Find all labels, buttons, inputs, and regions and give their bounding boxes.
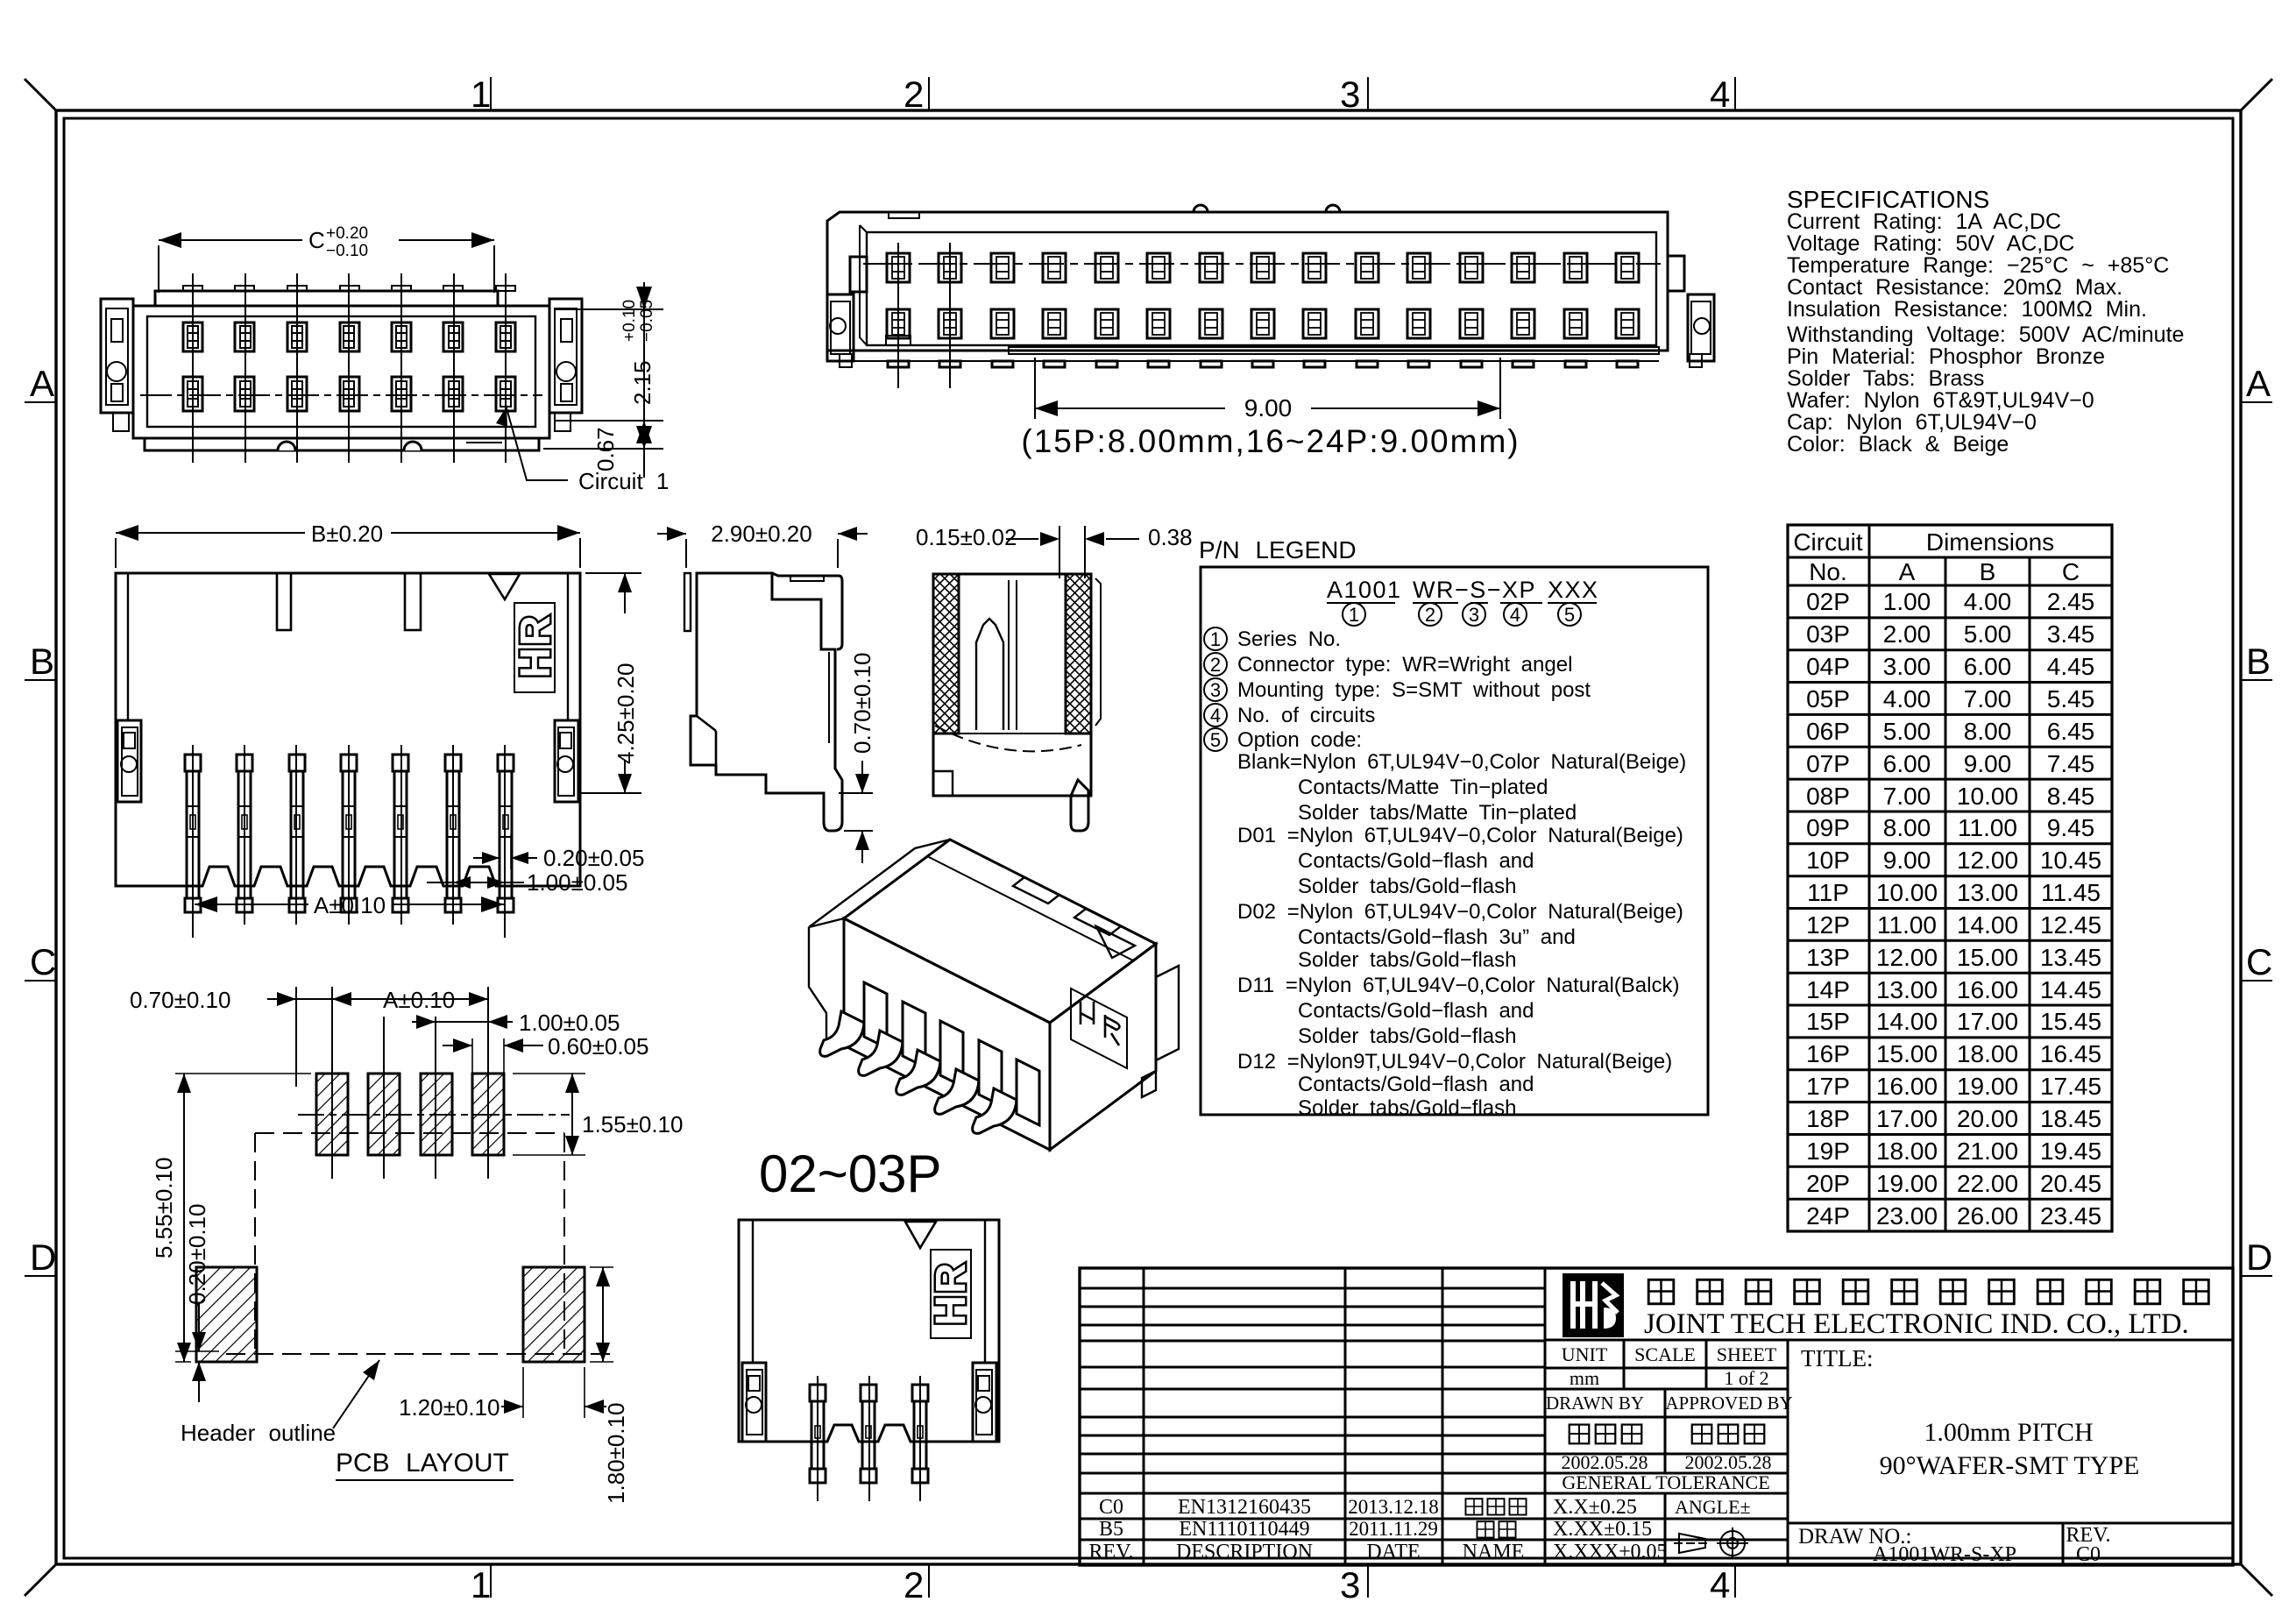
svg-text:1.00±0.05: 1.00±0.05: [519, 1010, 620, 1036]
svg-text:Temperature Range: −25°C ~ +85: Temperature Range: −25°C ~ +85°C: [1787, 253, 2169, 278]
svg-text:2: 2: [904, 74, 924, 115]
svg-text:2002.05.28: 2002.05.28: [1562, 1451, 1648, 1473]
svg-text:XXX: XXX: [1548, 577, 1599, 603]
svg-text:Contacts/Gold−flash and: Contacts/Gold−flash and: [1298, 999, 1534, 1023]
svg-text:4.25±0.20: 4.25±0.20: [613, 663, 639, 764]
svg-text:No. of circuits: No. of circuits: [1237, 704, 1375, 727]
svg-text:SCALE: SCALE: [1634, 1343, 1696, 1365]
svg-text:Solder tabs/Gold−flash: Solder tabs/Gold−flash: [1298, 875, 1516, 898]
svg-text:10.00: 10.00: [1957, 783, 2018, 810]
svg-text:1.80±0.10: 1.80±0.10: [603, 1403, 629, 1504]
svg-text:PCB LAYOUT: PCB LAYOUT: [336, 1449, 509, 1478]
svg-text:06P: 06P: [1806, 718, 1850, 745]
svg-text:1: 1: [471, 74, 491, 115]
svg-text:B: B: [1980, 558, 1996, 585]
svg-text:REV.: REV.: [1089, 1541, 1134, 1563]
svg-text:08P: 08P: [1806, 783, 1850, 810]
svg-text:21.00: 21.00: [1957, 1138, 2018, 1165]
svg-text:19P: 19P: [1806, 1138, 1850, 1165]
svg-text:17.00: 17.00: [1876, 1105, 1938, 1132]
svg-text:Solder tabs/Gold−flash: Solder tabs/Gold−flash: [1298, 1096, 1516, 1120]
svg-text:B±0.20: B±0.20: [311, 521, 383, 547]
svg-text:Circuit: Circuit: [1793, 528, 1863, 556]
svg-text:NAME: NAME: [1463, 1541, 1525, 1563]
svg-text:Contacts/Matte Tin−plated: Contacts/Matte Tin−plated: [1298, 776, 1548, 799]
svg-text:Connector type: WR=Wright ange: Connector type: WR=Wright angel: [1237, 653, 1572, 677]
svg-text:2.45: 2.45: [2047, 588, 2095, 615]
svg-text:X.XX±0.15: X.XX±0.15: [1553, 1518, 1652, 1541]
svg-text:D01 =Nylon 6T,UL94V−0,Color N: D01 =Nylon 6T,UL94V−0,Color Natural(Beig…: [1237, 824, 1683, 847]
svg-text:18P: 18P: [1806, 1105, 1850, 1132]
svg-text:DESCRIPTION: DESCRIPTION: [1176, 1541, 1313, 1563]
svg-text:0.70±0.10: 0.70±0.10: [849, 653, 875, 754]
svg-text:Solder Tabs: Brass: Solder Tabs: Brass: [1787, 366, 1984, 391]
svg-text:1 of 2: 1 of 2: [1724, 1367, 1768, 1389]
svg-text:Option code:: Option code:: [1237, 728, 1362, 752]
svg-text:C0: C0: [1099, 1496, 1123, 1519]
svg-text:02P: 02P: [1806, 588, 1850, 615]
svg-text:3: 3: [1340, 74, 1360, 115]
svg-text:4: 4: [1710, 1564, 1730, 1605]
svg-text:6.45: 6.45: [2047, 718, 2095, 745]
svg-text:DATE: DATE: [1366, 1541, 1420, 1563]
svg-text:No.: No.: [1809, 558, 1847, 585]
svg-text:11.45: 11.45: [2041, 879, 2101, 906]
svg-text:17.00: 17.00: [1957, 1008, 2018, 1035]
svg-text:SHEET: SHEET: [1717, 1343, 1777, 1365]
svg-text:19.00: 19.00: [1957, 1073, 2018, 1100]
svg-text:4: 4: [1510, 604, 1520, 626]
svg-text:15P: 15P: [1806, 1008, 1850, 1035]
svg-text:2: 2: [904, 1564, 924, 1605]
svg-text:B: B: [30, 641, 54, 682]
svg-text:5.00: 5.00: [1883, 718, 1931, 745]
svg-text:5.55±0.10: 5.55±0.10: [151, 1158, 177, 1258]
svg-text:Color: Black & Beige: Color: Black & Beige: [1787, 432, 2009, 457]
svg-text:Pin Material: Phosphor Bronze: Pin Material: Phosphor Bronze: [1787, 344, 2105, 369]
svg-text:D11 =Nylon 6T,UL94V−0,Color N: D11 =Nylon 6T,UL94V−0,Color Natural(Balc…: [1237, 974, 1679, 997]
svg-text:6.00: 6.00: [1883, 750, 1931, 777]
svg-text:3: 3: [1340, 1564, 1360, 1605]
svg-text:Current Rating: 1A AC,DC: Current Rating: 1A AC,DC: [1787, 209, 2061, 234]
svg-text:Blank=Nylon 6T,UL94V−0,Color N: Blank=Nylon 6T,UL94V−0,Color Natural(Bei…: [1237, 750, 1686, 774]
svg-text:9.00: 9.00: [1883, 847, 1931, 874]
svg-text:13.45: 13.45: [2040, 944, 2101, 971]
svg-text:2: 2: [1425, 604, 1435, 626]
svg-text:10P: 10P: [1806, 847, 1850, 874]
svg-text:Contacts/Gold−flash and: Contacts/Gold−flash and: [1298, 1073, 1534, 1096]
svg-text:GENERAL TOLERANCE: GENERAL TOLERANCE: [1562, 1471, 1769, 1493]
svg-text:X.XXX±0.05: X.XXX±0.05: [1553, 1541, 1668, 1563]
svg-text:mm: mm: [1570, 1367, 1599, 1389]
svg-text:18.00: 18.00: [1876, 1138, 1938, 1165]
svg-text:B: B: [2246, 641, 2271, 682]
svg-text:0.67: 0.67: [592, 427, 619, 471]
svg-text:03P: 03P: [1806, 620, 1850, 648]
svg-text:UNIT: UNIT: [1562, 1343, 1608, 1365]
svg-text:3: 3: [1469, 604, 1479, 626]
svg-text:Voltage Rating: 50V AC,DC: Voltage Rating: 50V AC,DC: [1787, 231, 2074, 256]
svg-text:0.70±0.10: 0.70±0.10: [130, 987, 230, 1013]
svg-text:0.60±0.05: 0.60±0.05: [548, 1033, 648, 1060]
svg-text:09P: 09P: [1806, 814, 1850, 841]
svg-text:3.00: 3.00: [1883, 653, 1931, 680]
svg-text:12.00: 12.00: [1957, 847, 2018, 874]
svg-text:24P: 24P: [1806, 1202, 1850, 1230]
svg-text:7.00: 7.00: [1964, 685, 2012, 712]
svg-text:4: 4: [1710, 74, 1730, 115]
svg-text:8.00: 8.00: [1964, 718, 2012, 745]
svg-text:WR−S−XP: WR−S−XP: [1413, 577, 1536, 603]
svg-text:90°WAFER-SMT TYPE: 90°WAFER-SMT TYPE: [1880, 1451, 2140, 1480]
svg-text:14.00: 14.00: [1876, 1008, 1938, 1035]
svg-text:2011.11.29: 2011.11.29: [1349, 1518, 1438, 1540]
svg-text:1: 1: [1349, 604, 1359, 626]
svg-text:D12 =Nylon9T,UL94V−0,Color Na: D12 =Nylon9T,UL94V−0,Color Natural(Beige…: [1237, 1050, 1672, 1074]
svg-text:12.00: 12.00: [1876, 944, 1938, 971]
svg-text:1: 1: [1210, 628, 1221, 650]
svg-text:Mounting type: S=SMT without p: Mounting type: S=SMT without post: [1237, 678, 1591, 702]
svg-text:A: A: [1899, 558, 1916, 585]
svg-text:7.45: 7.45: [2047, 750, 2095, 777]
svg-text:Insulation Resistance: 100MΩ M: Insulation Resistance: 100MΩ Min.: [1787, 297, 2147, 322]
svg-text:A1001WR-S-XP: A1001WR-S-XP: [1873, 1543, 2016, 1566]
svg-text:20.45: 20.45: [2040, 1170, 2101, 1197]
svg-text:C: C: [2246, 941, 2272, 982]
svg-text:Header outline: Header outline: [181, 1420, 336, 1446]
svg-text:18.00: 18.00: [1957, 1040, 2018, 1067]
svg-text:D02 =Nylon 6T,UL94V−0,Color N: D02 =Nylon 6T,UL94V−0,Color Natural(Beig…: [1237, 900, 1683, 924]
svg-text:Withstanding Voltage: 500V AC/: Withstanding Voltage: 500V AC/minute: [1787, 322, 2184, 347]
svg-text:Contacts/Gold−flash and: Contacts/Gold−flash and: [1298, 849, 1534, 873]
svg-text:4.00: 4.00: [1964, 588, 2012, 615]
svg-text:Wafer: Nylon 6T&9T,UL94V−0: Wafer: Nylon 6T&9T,UL94V−0: [1787, 388, 2094, 413]
svg-text:A±0.10: A±0.10: [383, 987, 455, 1013]
svg-text:07P: 07P: [1806, 750, 1850, 777]
svg-text:11.00: 11.00: [1877, 911, 1937, 939]
svg-text:Contact Resistance: 20mΩ Max.: Contact Resistance: 20mΩ Max.: [1787, 275, 2122, 300]
svg-text:EN1312160435: EN1312160435: [1178, 1496, 1311, 1519]
svg-text:Solder tabs/Gold−flash: Solder tabs/Gold−flash: [1298, 1024, 1516, 1048]
svg-text:8.45: 8.45: [2047, 783, 2095, 810]
svg-text:+0.20: +0.20: [326, 224, 368, 243]
svg-text:15.00: 15.00: [1957, 944, 2018, 971]
svg-text:11.00: 11.00: [1958, 814, 2017, 841]
svg-text:14P: 14P: [1806, 976, 1850, 1003]
svg-text:Solder tabs/Matte Tin−plated: Solder tabs/Matte Tin−plated: [1298, 801, 1577, 825]
svg-text:9.00: 9.00: [1244, 394, 1293, 422]
svg-text:1.00mm PITCH: 1.00mm PITCH: [1924, 1418, 2093, 1447]
svg-text:9.45: 9.45: [2047, 814, 2095, 841]
svg-text:C: C: [30, 941, 56, 982]
svg-text:17P: 17P: [1806, 1073, 1850, 1100]
svg-text:1.20±0.10: 1.20±0.10: [399, 1394, 500, 1421]
svg-text:HR: HR: [513, 613, 559, 677]
svg-text:12.45: 12.45: [2040, 911, 2101, 939]
svg-text:D: D: [2246, 1237, 2272, 1278]
svg-text:19.45: 19.45: [2040, 1138, 2101, 1165]
svg-text:10.45: 10.45: [2040, 847, 2101, 874]
svg-text:05P: 05P: [1806, 685, 1850, 712]
svg-text:Solder tabs/Gold−flash: Solder tabs/Gold−flash: [1298, 948, 1516, 972]
svg-text:8.00: 8.00: [1883, 814, 1931, 841]
svg-text:11P: 11P: [1807, 879, 1849, 906]
svg-text:B5: B5: [1099, 1518, 1123, 1541]
svg-text:1.00±0.05: 1.00±0.05: [527, 869, 627, 896]
svg-text:2013.12.18: 2013.12.18: [1348, 1496, 1439, 1518]
svg-text:−0.05: −0.05: [638, 300, 656, 342]
svg-text:22.00: 22.00: [1957, 1170, 2018, 1197]
svg-text:10.00: 10.00: [1876, 879, 1938, 906]
svg-text:EN1110110449: EN1110110449: [1179, 1518, 1309, 1541]
svg-text:4.45: 4.45: [2047, 653, 2095, 680]
svg-text:C: C: [308, 227, 325, 253]
svg-text:5: 5: [1210, 729, 1221, 751]
svg-text:DRAWN BY: DRAWN BY: [1546, 1393, 1644, 1414]
svg-text:02~03P: 02~03P: [759, 1145, 942, 1203]
svg-text:A: A: [2246, 363, 2271, 404]
svg-text:2.00: 2.00: [1883, 620, 1931, 648]
svg-text:3.45: 3.45: [2047, 620, 2095, 648]
svg-text:04P: 04P: [1806, 653, 1850, 680]
svg-text:23.00: 23.00: [1876, 1202, 1938, 1230]
svg-text:+0.10: +0.10: [620, 300, 639, 342]
svg-text:1: 1: [471, 1564, 491, 1605]
svg-text:15.00: 15.00: [1876, 1040, 1938, 1067]
svg-text:4: 4: [1210, 705, 1221, 726]
svg-text:A±0.10: A±0.10: [314, 892, 386, 918]
svg-text:2: 2: [1210, 654, 1221, 676]
svg-text:9.00: 9.00: [1964, 750, 2012, 777]
svg-text:Dimensions: Dimensions: [1926, 528, 2054, 556]
svg-text:Series No.: Series No.: [1237, 627, 1341, 651]
svg-text:JOINT TECH ELECTRONIC IND. CO.: JOINT TECH ELECTRONIC IND. CO., LTD.: [1644, 1308, 2189, 1340]
svg-text:Contacts/Gold−flash 3u” and: Contacts/Gold−flash 3u” and: [1298, 925, 1576, 949]
svg-text:1.00: 1.00: [1883, 588, 1931, 615]
svg-text:ANGLE±: ANGLE±: [1675, 1496, 1751, 1518]
svg-text:5: 5: [1564, 604, 1575, 626]
svg-text:2002.05.28: 2002.05.28: [1685, 1451, 1772, 1473]
svg-text:0.20±0.05: 0.20±0.05: [543, 845, 644, 871]
svg-text:C: C: [2062, 558, 2080, 585]
svg-text:14.45: 14.45: [2040, 976, 2101, 1003]
svg-text:17.45: 17.45: [2040, 1073, 2101, 1100]
svg-text:A1001: A1001: [1327, 577, 1402, 603]
svg-text:6.00: 6.00: [1964, 653, 2012, 680]
svg-text:(15P:8.00mm,16~24P:9.00mm): (15P:8.00mm,16~24P:9.00mm): [1021, 423, 1520, 459]
svg-text:16.00: 16.00: [1957, 976, 2018, 1003]
svg-text:P/N LEGEND: P/N LEGEND: [1199, 536, 1357, 563]
svg-text:3: 3: [1210, 679, 1221, 701]
svg-text:0.38: 0.38: [1148, 524, 1193, 550]
svg-text:−0.10: −0.10: [326, 242, 368, 260]
svg-text:14.00: 14.00: [1957, 911, 2018, 939]
svg-text:APPROVED BY: APPROVED BY: [1665, 1393, 1792, 1414]
svg-text:A: A: [30, 363, 54, 404]
svg-text:2.90±0.20: 2.90±0.20: [711, 521, 811, 547]
svg-text:15.45: 15.45: [2040, 1008, 2101, 1035]
svg-text:2.15: 2.15: [629, 360, 655, 405]
svg-text:18.45: 18.45: [2040, 1105, 2101, 1132]
svg-text:X.X±0.25: X.X±0.25: [1553, 1496, 1637, 1519]
svg-text:26.00: 26.00: [1957, 1202, 2018, 1230]
svg-text:Cap: Nylon 6T,UL94V−0: Cap: Nylon 6T,UL94V−0: [1787, 410, 2037, 435]
svg-text:7.00: 7.00: [1883, 783, 1931, 810]
svg-text:Circuit 1: Circuit 1: [578, 468, 669, 494]
svg-text:13P: 13P: [1806, 944, 1850, 971]
svg-text:23.45: 23.45: [2040, 1202, 2101, 1230]
svg-text:20P: 20P: [1806, 1170, 1850, 1197]
svg-text:19.00: 19.00: [1876, 1170, 1938, 1197]
svg-text:HR: HR: [928, 1261, 974, 1325]
svg-text:13.00: 13.00: [1957, 879, 2018, 906]
svg-text:D: D: [30, 1237, 56, 1278]
svg-text:5.00: 5.00: [1964, 620, 2012, 648]
svg-text:16.45: 16.45: [2040, 1040, 2101, 1067]
svg-text:0.20±0.10: 0.20±0.10: [184, 1204, 210, 1305]
svg-text:TITLE:: TITLE:: [1801, 1345, 1873, 1371]
svg-text:16.00: 16.00: [1876, 1073, 1938, 1100]
svg-text:13.00: 13.00: [1876, 976, 1938, 1003]
svg-text:20.00: 20.00: [1957, 1105, 2018, 1132]
svg-text:12P: 12P: [1806, 911, 1850, 939]
svg-text:4.00: 4.00: [1883, 685, 1931, 712]
svg-text:0.15±0.02: 0.15±0.02: [916, 524, 1017, 550]
svg-text:5.45: 5.45: [2047, 685, 2095, 712]
svg-text:1.55±0.10: 1.55±0.10: [582, 1111, 683, 1138]
svg-text:16P: 16P: [1806, 1040, 1850, 1067]
svg-text:C0: C0: [2076, 1543, 2101, 1566]
